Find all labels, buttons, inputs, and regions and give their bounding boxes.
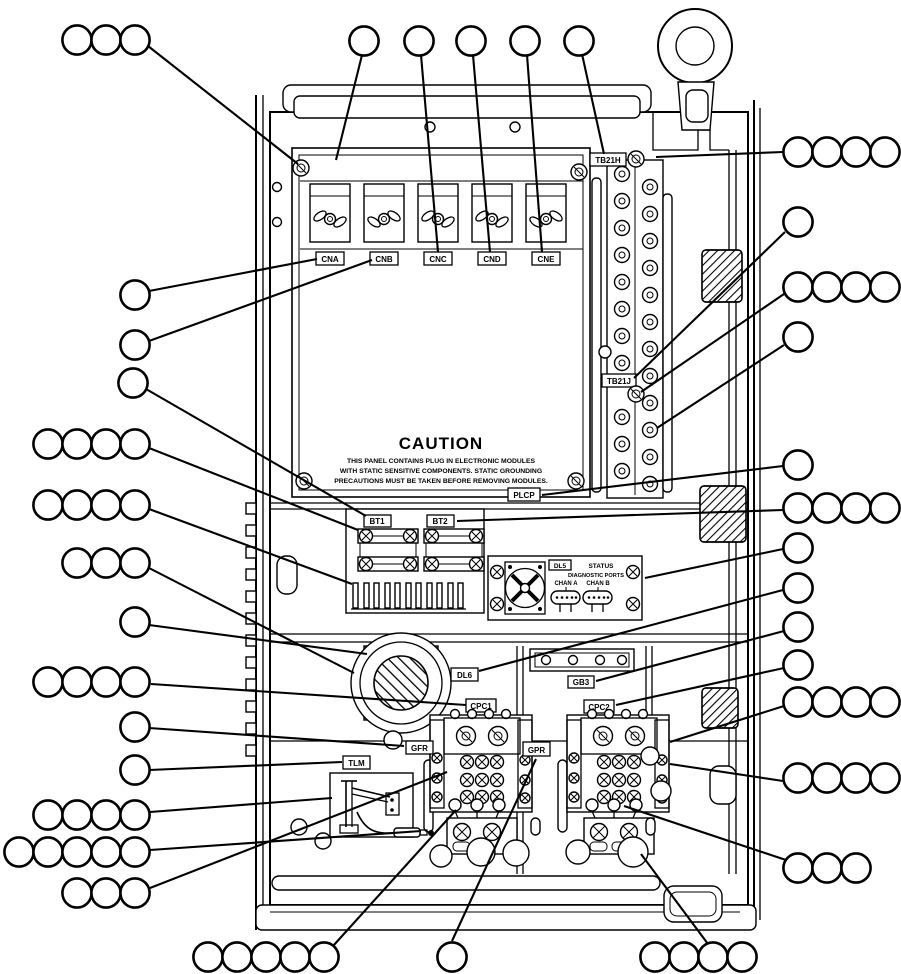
parts-location-diagram: CNA CNB CNC CND CNE CAUTION THIS PANEL C… <box>0 0 901 974</box>
chan-b-label: CHAN B <box>586 581 610 587</box>
screw-icon <box>568 473 584 489</box>
callout-circle <box>812 763 841 792</box>
callout-circle <box>812 137 841 166</box>
label-cnb: CNB <box>370 252 398 265</box>
label-gpr: GPR <box>523 742 550 756</box>
label-gfr: GFR <box>406 741 433 754</box>
callout-circle <box>783 272 812 301</box>
contactor-left <box>430 710 532 855</box>
callout-circle <box>783 493 812 522</box>
cn-module <box>526 184 566 242</box>
callout-circle <box>33 667 62 696</box>
callout-circle <box>120 330 149 359</box>
callout-circle <box>222 942 251 971</box>
screw-icon <box>628 151 644 167</box>
svg-text:DL6: DL6 <box>457 671 473 680</box>
label-tb21h: TB21H <box>590 153 626 166</box>
svg-text:CND: CND <box>483 255 501 264</box>
callout-circle <box>783 650 812 679</box>
leader-line <box>657 345 784 428</box>
mounting-hole <box>273 218 282 227</box>
callout-circle <box>783 763 812 792</box>
svg-text:CAUTION: CAUTION <box>399 434 483 453</box>
label-plcp: PLCP <box>508 488 540 501</box>
leader-line <box>645 549 783 578</box>
cn-module <box>418 184 458 242</box>
callout-circle <box>783 853 812 882</box>
leader-line <box>656 152 783 157</box>
label-cnc: CNC <box>424 252 452 265</box>
panel-diagram-svg: CNA CNB CNC CND CNE CAUTION THIS PANEL C… <box>0 0 901 974</box>
callout-circle <box>120 837 149 866</box>
svg-text:PLCP: PLCP <box>513 491 535 500</box>
callout-circle <box>510 26 539 55</box>
label-tlm: TLM <box>343 756 370 769</box>
leader-line <box>149 762 342 770</box>
leader-line <box>149 448 358 530</box>
svg-text:WITH STATIC SENSITIVE COMPONEN: WITH STATIC SENSITIVE COMPONENTS. STATIC… <box>340 468 542 475</box>
callout-circle <box>783 137 812 166</box>
callout-circle <box>870 137 899 166</box>
svg-text:GPR: GPR <box>528 746 546 755</box>
leader-line <box>149 728 404 746</box>
leader-line <box>148 46 298 164</box>
callout-circle <box>727 942 756 971</box>
callout-circle <box>812 853 841 882</box>
callout-circle <box>62 25 91 54</box>
callout-circle <box>91 490 120 519</box>
callout-circle <box>841 853 870 882</box>
callout-circle <box>812 687 841 716</box>
svg-text:TB21H: TB21H <box>595 156 621 165</box>
callout-circle <box>91 878 120 907</box>
callout-circle <box>120 548 149 577</box>
caution-text: CAUTION THIS PANEL CONTAINS PLUG IN ELEC… <box>334 434 548 485</box>
svg-text:CNE: CNE <box>538 255 556 264</box>
callout-circle <box>91 429 120 458</box>
chan-a-label: CHAN A <box>554 581 578 587</box>
callout-circle <box>669 942 698 971</box>
callout-circle <box>783 207 812 236</box>
callout-circle <box>120 607 149 636</box>
callout-circle <box>193 942 222 971</box>
status-title: STATUS <box>588 563 614 570</box>
leader-line <box>150 798 332 812</box>
label-tb21j: TB21J <box>602 374 636 387</box>
callout-circle <box>564 26 593 55</box>
svg-text:BT2: BT2 <box>432 517 448 526</box>
callout-circle <box>120 712 149 741</box>
callout-circle <box>404 26 433 55</box>
callout-circle <box>309 942 338 971</box>
callout-circle <box>91 800 120 829</box>
status-lamp-label: DL5 <box>554 563 567 570</box>
mounting-hole <box>273 183 282 192</box>
callout-circle <box>841 137 870 166</box>
status-module: DL5 STATUS DIAGNOSTIC PORTS CHAN A CHAN … <box>488 556 642 620</box>
leader-line <box>150 831 421 850</box>
callout-circle <box>62 800 91 829</box>
label-gb3: GB3 <box>568 676 594 688</box>
callout-circle <box>91 25 120 54</box>
svg-text:CNA: CNA <box>321 255 339 264</box>
callout-circle <box>62 878 91 907</box>
callout-circle <box>870 493 899 522</box>
cn-module <box>472 184 512 242</box>
screw-icon <box>628 386 644 402</box>
svg-text:THIS PANEL CONTAINS PLUG IN EL: THIS PANEL CONTAINS PLUG IN ELECTRONIC M… <box>347 458 536 465</box>
callout-circle <box>62 548 91 577</box>
callout-circle <box>120 280 149 309</box>
callout-circle <box>783 612 812 641</box>
label-cna: CNA <box>316 252 344 265</box>
callout-circle <box>120 25 149 54</box>
callout-circle <box>456 26 485 55</box>
callout-circle <box>812 493 841 522</box>
callout-circle <box>841 272 870 301</box>
slot <box>558 760 567 832</box>
callout-circle <box>120 667 149 696</box>
callout-circle <box>783 450 812 479</box>
callout-circle <box>120 800 149 829</box>
callout-circle <box>91 548 120 577</box>
callout-circle <box>4 837 33 866</box>
callout-circle <box>280 942 309 971</box>
callout-circle <box>698 942 727 971</box>
leader-line <box>149 260 372 341</box>
callout-circle <box>91 837 120 866</box>
callout-circle <box>120 429 149 458</box>
corner-flap <box>664 886 722 922</box>
callout-circle <box>870 687 899 716</box>
callout-circle <box>120 755 149 784</box>
mounting-hole <box>510 122 520 132</box>
callout-circle <box>841 493 870 522</box>
callout-circle <box>62 837 91 866</box>
callout-circle <box>118 368 147 397</box>
callout-circle <box>62 429 91 458</box>
svg-text:BT1: BT1 <box>369 517 385 526</box>
svg-text:TLM: TLM <box>348 759 365 768</box>
callout-circle <box>62 667 91 696</box>
callout-circle <box>870 763 899 792</box>
label-bt2: BT2 <box>427 515 454 527</box>
svg-text:PRECAUTIONS MUST BE TAKEN BEFO: PRECAUTIONS MUST BE TAKEN BEFORE REMOVIN… <box>334 478 548 485</box>
callout-circle <box>640 942 669 971</box>
callout-circle <box>841 687 870 716</box>
label-cnd: CND <box>478 252 506 265</box>
cn-module <box>310 184 350 242</box>
callout-circle <box>783 573 812 602</box>
callout-circle <box>33 490 62 519</box>
leader-line <box>616 668 784 705</box>
callout-circle <box>33 800 62 829</box>
terminal-strip <box>592 160 672 498</box>
svg-text:TB21J: TB21J <box>607 377 631 386</box>
callout-circle <box>120 878 149 907</box>
callout-circle <box>783 533 812 562</box>
hinge-ticks <box>246 503 256 756</box>
callout-circle <box>62 490 91 519</box>
cn-module <box>364 184 404 242</box>
leader-line <box>149 625 367 654</box>
heat-sink <box>351 583 466 609</box>
svg-text:CNB: CNB <box>375 255 393 264</box>
svg-text:CNC: CNC <box>429 255 447 264</box>
callout-circle <box>841 763 870 792</box>
svg-text:GFR: GFR <box>411 744 428 753</box>
connector-block-icon <box>700 486 746 542</box>
callout-circle <box>437 942 466 971</box>
callout-circle <box>349 26 378 55</box>
label-cne: CNE <box>532 252 560 265</box>
callout-circle <box>33 429 62 458</box>
callout-circle <box>812 272 841 301</box>
label-dl6: DL6 <box>451 668 478 681</box>
callout-circle <box>783 322 812 351</box>
status-subtitle: DIAGNOSTIC PORTS <box>568 573 624 579</box>
label-bt1: BT1 <box>364 515 391 527</box>
callout-circle <box>251 942 280 971</box>
callout-circle <box>783 687 812 716</box>
screw-icon <box>571 164 587 180</box>
callout-circle <box>870 272 899 301</box>
svg-text:GB3: GB3 <box>573 678 590 687</box>
callout-circle <box>33 837 62 866</box>
callout-circle <box>120 490 149 519</box>
callout-circle <box>91 667 120 696</box>
